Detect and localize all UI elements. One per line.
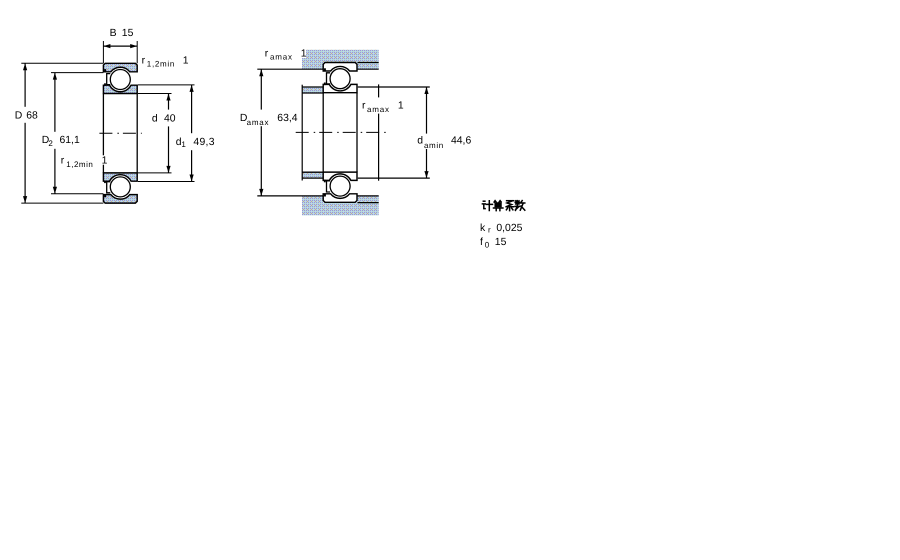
svg-text:68: 68: [26, 110, 38, 121]
svg-text:40: 40: [164, 114, 176, 125]
svg-text:D: D: [15, 110, 23, 121]
svg-text:d: d: [417, 135, 423, 146]
svg-text:1: 1: [181, 140, 186, 149]
svg-text:61,1: 61,1: [60, 135, 80, 146]
svg-text:44,6: 44,6: [451, 136, 471, 147]
svg-text:r: r: [488, 225, 491, 234]
svg-text:r: r: [142, 55, 146, 66]
svg-text:B: B: [110, 28, 117, 39]
svg-text:f: f: [480, 237, 483, 248]
svg-text:amin: amin: [424, 141, 444, 150]
svg-text:0: 0: [485, 241, 490, 250]
svg-text:1: 1: [102, 155, 108, 166]
svg-text:49,3: 49,3: [193, 137, 214, 148]
svg-text:d: d: [152, 114, 158, 125]
svg-text:15: 15: [495, 237, 507, 248]
svg-text:63,4: 63,4: [277, 113, 297, 124]
svg-text:k: k: [480, 223, 486, 234]
svg-text:amax: amax: [367, 105, 390, 114]
svg-text:amax: amax: [270, 53, 293, 62]
svg-text:1,2min: 1,2min: [147, 60, 175, 69]
svg-text:1,2min: 1,2min: [66, 160, 93, 169]
svg-text:15: 15: [122, 28, 134, 39]
svg-text:r: r: [265, 48, 269, 59]
svg-text:amax: amax: [247, 118, 270, 127]
svg-text:0,025: 0,025: [496, 223, 522, 234]
svg-text:2: 2: [48, 139, 53, 148]
svg-text:1: 1: [398, 100, 404, 111]
svg-text:1: 1: [301, 48, 307, 59]
svg-text:r: r: [61, 156, 65, 167]
svg-text:r: r: [362, 100, 366, 111]
svg-text:1: 1: [183, 55, 189, 66]
